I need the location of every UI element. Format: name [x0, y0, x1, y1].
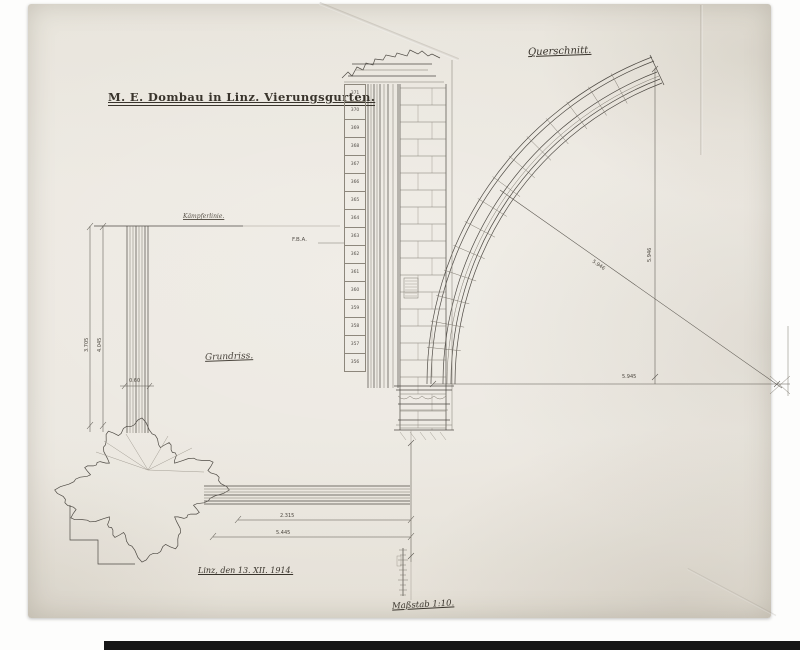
dim-arch-radius: 5.946 [591, 259, 606, 272]
course-number-cell: 364 [344, 210, 366, 228]
arch-section: 5.946 5.946 5.945 [427, 55, 790, 396]
dim-arch-height: 5.946 [647, 248, 653, 262]
course-number-cell: 357 [344, 336, 366, 354]
dim-pier-right: 4.045 [97, 338, 103, 352]
stamp-block [404, 278, 418, 298]
capital [394, 386, 454, 410]
plan-label: Grundriss. [205, 351, 253, 363]
dim-pier-left: 3.705 [84, 338, 90, 352]
course-number-cell: 363 [344, 228, 366, 246]
course-number-cell: 360 [344, 282, 366, 300]
course-number-strip: 3713703693683673663653643633623613603593… [344, 84, 366, 372]
star-pier-outline [55, 418, 230, 562]
dim-rib-width: 0.60 [129, 378, 140, 384]
course-number-cell: 368 [344, 138, 366, 156]
course-number-cell: 370 [344, 102, 366, 120]
drawing-title: M. E. Dombau in Linz. Vierungsgurten. [108, 90, 375, 106]
ashlar-joints [400, 88, 446, 430]
dim-plan-inner: 2.315 [280, 513, 294, 519]
dim-plan-outer: 5.445 [276, 530, 290, 536]
date-label: Linz, den 13. XII. 1914. [198, 566, 293, 575]
fba-annotation: F.B.A. [292, 237, 307, 243]
course-number-cell: 365 [344, 192, 366, 210]
rib-bundle-vertical [127, 226, 148, 433]
course-number-cell: 366 [344, 174, 366, 192]
course-number-cell: 356 [344, 354, 366, 372]
course-number-cell: 369 [344, 120, 366, 138]
course-number-cell: 358 [344, 318, 366, 336]
rib-bundle-horizontal [204, 486, 410, 504]
scanned-architectural-drawing: { "document": { "title": "M. E. Dombau i… [0, 0, 800, 650]
course-number-cell: 362 [344, 246, 366, 264]
pier-elevation [318, 50, 454, 440]
course-number-cell: 367 [344, 156, 366, 174]
scan-background-strip [104, 641, 800, 650]
course-number-cell: 359 [344, 300, 366, 318]
course-number-cell: 371 [344, 84, 366, 102]
section-label: Querschnitt. [528, 45, 592, 58]
dim-arch-span: 5.945 [622, 374, 636, 380]
course-number-cell: 361 [344, 264, 366, 282]
impost-line-label: Kämpferlinie. [183, 213, 224, 220]
scale-bar [397, 548, 408, 596]
voussoir-ticks [427, 73, 627, 350]
pier-radial-lines [96, 434, 204, 472]
